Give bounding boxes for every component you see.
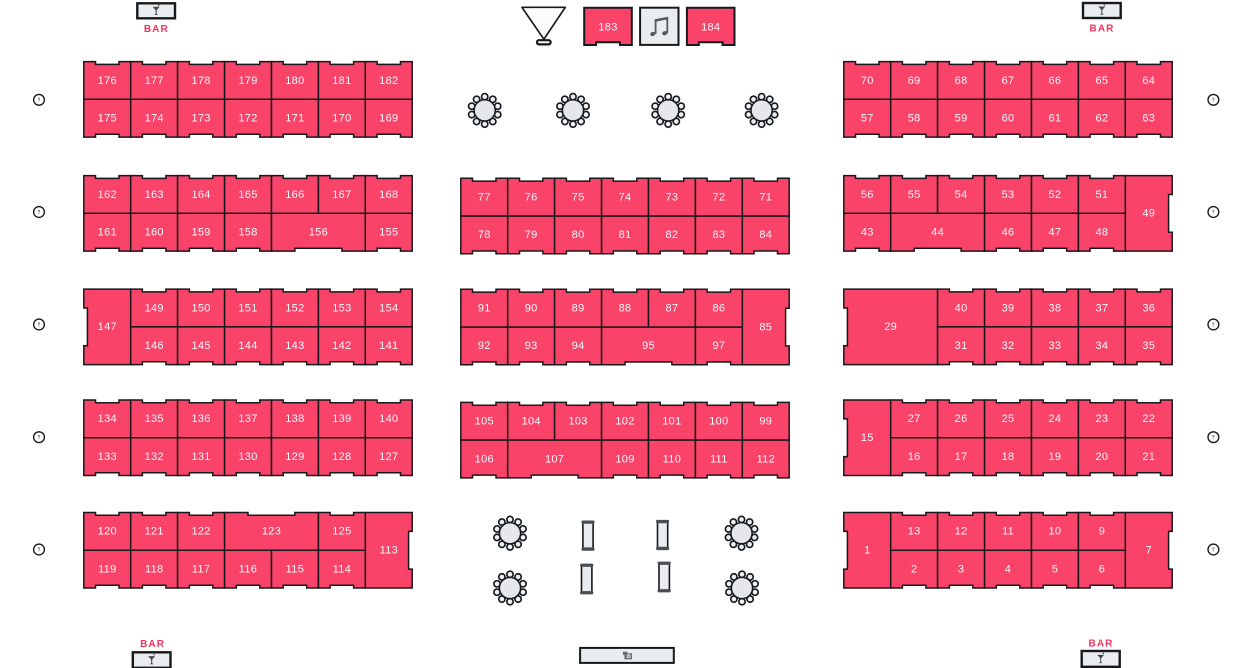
svg-text:162: 162 (98, 189, 117, 201)
svg-text:1: 1 (864, 545, 870, 557)
svg-text:134: 134 (98, 413, 117, 425)
svg-text:91: 91 (478, 303, 491, 315)
svg-text:70: 70 (861, 75, 874, 87)
svg-text:22: 22 (1142, 413, 1155, 425)
svg-text:36: 36 (1142, 302, 1155, 314)
svg-text:95: 95 (642, 340, 655, 352)
svg-text:120: 120 (98, 526, 117, 538)
svg-text:136: 136 (191, 413, 210, 425)
svg-text:97: 97 (712, 340, 725, 352)
svg-text:13: 13 (908, 526, 921, 538)
svg-text:105: 105 (475, 416, 494, 428)
svg-text:93: 93 (525, 340, 538, 352)
svg-text:52: 52 (1048, 189, 1061, 201)
svg-text:49: 49 (1142, 208, 1155, 220)
svg-text:184: 184 (701, 21, 720, 33)
svg-text:55: 55 (908, 189, 921, 201)
svg-text:BAR: BAR (1089, 638, 1114, 649)
svg-text:9: 9 (1099, 526, 1105, 538)
svg-text:5: 5 (1052, 563, 1058, 575)
svg-text:53: 53 (1002, 189, 1015, 201)
svg-text:3: 3 (958, 563, 964, 575)
svg-text:138: 138 (285, 413, 304, 425)
svg-text:113: 113 (380, 545, 398, 557)
svg-text:82: 82 (665, 229, 678, 241)
svg-text:115: 115 (286, 563, 304, 575)
svg-text:57: 57 (861, 113, 874, 125)
svg-text:117: 117 (192, 563, 210, 575)
svg-text:163: 163 (145, 189, 164, 201)
svg-text:114: 114 (333, 563, 351, 575)
svg-text:20: 20 (1095, 451, 1108, 463)
svg-text:51: 51 (1095, 189, 1108, 201)
svg-text:56: 56 (861, 189, 874, 201)
svg-text:135: 135 (145, 413, 164, 425)
svg-text:62: 62 (1095, 113, 1108, 125)
svg-text:25: 25 (1002, 413, 1015, 425)
svg-text:32: 32 (1002, 340, 1015, 352)
svg-text:125: 125 (332, 526, 351, 538)
svg-text:112: 112 (757, 453, 775, 465)
svg-text:23: 23 (1095, 413, 1108, 425)
svg-text:75: 75 (572, 192, 585, 204)
svg-text:88: 88 (619, 303, 632, 315)
svg-text:154: 154 (379, 302, 398, 314)
svg-text:107: 107 (545, 453, 564, 465)
svg-text:21: 21 (1142, 451, 1155, 463)
svg-text:44: 44 (931, 227, 944, 239)
svg-text:74: 74 (619, 192, 632, 204)
svg-text:171: 171 (285, 113, 304, 125)
svg-text:153: 153 (332, 302, 351, 314)
svg-text:150: 150 (191, 302, 210, 314)
svg-text:39: 39 (1002, 302, 1015, 314)
svg-text:111: 111 (710, 453, 728, 465)
svg-text:100: 100 (709, 416, 728, 428)
svg-text:69: 69 (908, 75, 921, 87)
svg-text:54: 54 (955, 189, 968, 201)
svg-text:BAR: BAR (140, 639, 165, 650)
svg-text:131: 131 (191, 451, 210, 463)
svg-text:78: 78 (478, 229, 491, 241)
svg-text:66: 66 (1048, 75, 1061, 87)
svg-text:18: 18 (1002, 451, 1015, 463)
svg-text:165: 165 (238, 189, 257, 201)
svg-text:123: 123 (262, 526, 281, 538)
svg-text:2: 2 (911, 563, 917, 575)
svg-text:73: 73 (665, 192, 678, 204)
svg-text:35: 35 (1142, 340, 1155, 352)
svg-text:104: 104 (522, 416, 541, 428)
svg-text:58: 58 (908, 113, 921, 125)
svg-text:147: 147 (98, 321, 117, 333)
svg-text:67: 67 (1002, 75, 1015, 87)
svg-text:130: 130 (238, 451, 257, 463)
svg-text:176: 176 (98, 75, 117, 87)
svg-text:26: 26 (955, 413, 968, 425)
svg-text:164: 164 (191, 189, 210, 201)
svg-text:90: 90 (525, 303, 538, 315)
svg-text:94: 94 (572, 340, 585, 352)
svg-text:92: 92 (478, 340, 491, 352)
svg-text:10: 10 (1048, 526, 1061, 538)
svg-text:46: 46 (1002, 227, 1015, 239)
svg-text:139: 139 (332, 413, 351, 425)
svg-text:11: 11 (1002, 526, 1014, 538)
svg-text:118: 118 (145, 563, 163, 575)
svg-text:172: 172 (238, 113, 257, 125)
svg-text:BAR: BAR (144, 24, 169, 35)
svg-text:76: 76 (525, 192, 538, 204)
svg-text:160: 160 (145, 227, 164, 239)
svg-text:149: 149 (145, 302, 164, 314)
svg-text:166: 166 (285, 189, 304, 201)
svg-text:129: 129 (285, 451, 304, 463)
svg-text:132: 132 (145, 451, 164, 463)
svg-text:182: 182 (379, 75, 398, 87)
svg-text:64: 64 (1142, 75, 1155, 87)
svg-text:144: 144 (238, 340, 257, 352)
svg-text:85: 85 (759, 321, 772, 333)
svg-text:47: 47 (1048, 227, 1061, 239)
svg-text:122: 122 (191, 526, 210, 538)
svg-text:37: 37 (1095, 302, 1108, 314)
svg-text:81: 81 (619, 229, 632, 241)
svg-text:146: 146 (145, 340, 164, 352)
svg-text:181: 181 (332, 75, 351, 87)
svg-text:127: 127 (379, 451, 398, 463)
svg-text:61: 61 (1048, 113, 1061, 125)
svg-text:140: 140 (379, 413, 398, 425)
svg-text:80: 80 (572, 229, 585, 241)
svg-text:43: 43 (861, 227, 874, 239)
svg-text:174: 174 (145, 113, 164, 125)
svg-text:27: 27 (908, 413, 921, 425)
svg-text:167: 167 (332, 189, 351, 201)
svg-text:4: 4 (1005, 563, 1011, 575)
svg-text:158: 158 (238, 227, 257, 239)
svg-text:109: 109 (615, 453, 634, 465)
svg-text:60: 60 (1002, 113, 1015, 125)
svg-text:168: 168 (379, 189, 398, 201)
svg-text:152: 152 (285, 302, 304, 314)
svg-text:175: 175 (98, 113, 117, 125)
svg-text:59: 59 (955, 113, 968, 125)
svg-text:116: 116 (239, 563, 257, 575)
svg-text:83: 83 (712, 229, 725, 241)
svg-text:137: 137 (238, 413, 257, 425)
svg-text:141: 141 (379, 340, 398, 352)
svg-text:133: 133 (98, 451, 117, 463)
svg-text:33: 33 (1048, 340, 1061, 352)
svg-text:17: 17 (955, 451, 968, 463)
svg-text:119: 119 (98, 563, 116, 575)
svg-text:106: 106 (475, 453, 494, 465)
svg-text:110: 110 (663, 453, 681, 465)
svg-text:151: 151 (238, 302, 257, 314)
svg-text:79: 79 (525, 229, 538, 241)
svg-text:155: 155 (379, 227, 398, 239)
svg-text:86: 86 (712, 303, 725, 315)
svg-text:102: 102 (615, 416, 634, 428)
svg-text:48: 48 (1095, 227, 1108, 239)
svg-text:38: 38 (1048, 302, 1061, 314)
svg-text:40: 40 (955, 302, 968, 314)
svg-text:12: 12 (955, 526, 968, 538)
svg-text:29: 29 (884, 321, 897, 333)
svg-text:6: 6 (1099, 563, 1105, 575)
svg-text:170: 170 (332, 113, 351, 125)
svg-text:71: 71 (759, 192, 772, 204)
svg-text:34: 34 (1095, 340, 1108, 352)
svg-text:87: 87 (665, 303, 678, 315)
svg-text:145: 145 (191, 340, 210, 352)
svg-text:BAR: BAR (1090, 24, 1115, 35)
svg-text:156: 156 (309, 227, 328, 239)
svg-text:19: 19 (1048, 451, 1061, 463)
svg-text:183: 183 (598, 21, 617, 33)
svg-text:128: 128 (332, 451, 351, 463)
svg-text:159: 159 (191, 227, 210, 239)
svg-text:31: 31 (955, 340, 968, 352)
svg-text:121: 121 (145, 526, 164, 538)
svg-text:65: 65 (1095, 75, 1108, 87)
svg-text:72: 72 (712, 192, 725, 204)
svg-text:103: 103 (568, 416, 587, 428)
svg-text:173: 173 (191, 113, 210, 125)
svg-text:178: 178 (191, 75, 210, 87)
svg-text:143: 143 (285, 340, 304, 352)
svg-text:84: 84 (759, 229, 772, 241)
svg-text:89: 89 (572, 303, 585, 315)
svg-text:63: 63 (1142, 113, 1155, 125)
svg-text:24: 24 (1048, 413, 1061, 425)
svg-text:7: 7 (1146, 545, 1152, 557)
svg-text:15: 15 (861, 432, 874, 444)
svg-text:169: 169 (379, 113, 398, 125)
svg-text:16: 16 (908, 451, 921, 463)
svg-text:180: 180 (285, 75, 304, 87)
svg-text:101: 101 (662, 416, 681, 428)
svg-text:68: 68 (955, 75, 968, 87)
svg-text:77: 77 (478, 192, 491, 204)
svg-text:99: 99 (759, 416, 772, 428)
svg-text:177: 177 (145, 75, 164, 87)
svg-text:179: 179 (238, 75, 257, 87)
svg-text:161: 161 (98, 227, 117, 239)
svg-text:142: 142 (332, 340, 351, 352)
